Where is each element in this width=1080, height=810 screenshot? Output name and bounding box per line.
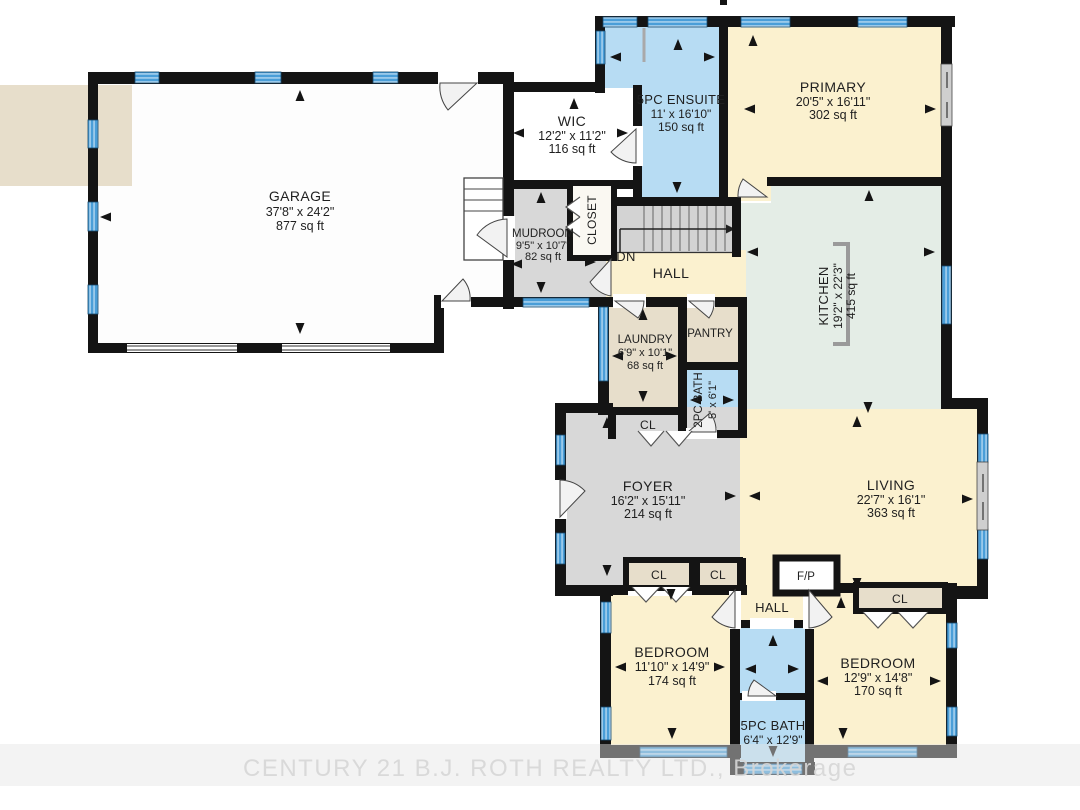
wall-segment [678,362,747,370]
brokerage-watermark: CENTURY 21 B.J. ROTH REALTY LTD., Broker… [0,744,1080,786]
room-label: WIC [558,113,586,129]
window [741,17,790,27]
room-label: CLOSET [585,195,599,245]
room-dims: 37'8" x 24'2" [266,205,335,219]
room-label: CL [892,592,908,606]
room-label: CL [710,568,726,582]
stairs-down-label: DN [616,249,635,264]
window [135,72,159,83]
room-area: 116 sq ft [548,142,596,156]
room-dims: 22'7" x 16'1" [857,493,926,507]
room-area: 174 sq ft [648,674,696,688]
room-dims: 12'2" x 11'2" [538,129,606,143]
window [599,307,608,381]
room-area: 214 sq ft [624,507,672,521]
room-area: 415 sq ft [844,272,858,319]
window [556,435,565,465]
window [523,298,589,307]
window [601,602,611,633]
wall-segment [503,82,604,92]
window [556,533,565,564]
room-area: 877 sq ft [276,219,324,233]
dimension-arrow [617,129,628,138]
room-label: FOYER [623,478,673,494]
room-wic-floor [0,85,132,186]
room-label: F/P [797,571,815,583]
room-area: 150 sq ft [658,120,705,134]
wall-segment [719,16,728,206]
wall-segment [732,197,741,257]
window [88,285,98,314]
room-label: HALL [653,265,690,281]
floorplan-drawing: GARAGE 37'8" x 24'2" 877 sq ft WIC 12'2"… [0,0,1080,810]
window [596,31,605,64]
door-opening [750,618,794,629]
dimension-arrow [513,129,524,138]
room-dims: 19'2" x 22'3" [831,263,845,329]
window [947,623,957,648]
window [601,707,611,740]
window [88,202,98,231]
cropped-top-mark [720,0,727,5]
room-dims: 12'9" x 14'8" [844,671,913,685]
dimension-arrow [570,98,579,109]
room-label: LIVING [867,477,915,493]
room-label: PANTRY [687,328,733,340]
window [88,120,98,148]
room-label: 5PC BATH [740,718,805,733]
room-label: 2PC BATH [693,372,705,427]
room-area: 363 sq ft [867,506,915,520]
window [648,17,707,27]
room-dims: 11' x 16'10" [651,107,712,121]
room-label: CL [651,568,667,582]
room-area: 68 sq ft [627,360,663,372]
window [942,266,951,324]
room-dims: 16'2" x 15'11" [611,494,686,508]
room-dims: 6'9" x 10'1" [618,347,672,359]
room-area: 82 sq ft [525,251,561,263]
room-dims: 11'10" x 14'9" [635,660,710,674]
room-label: MUDROOM [512,228,574,240]
room-label: BEDROOM [840,655,915,671]
watermark-text: CENTURY 21 B.J. ROTH REALTY LTD., Broker… [243,755,857,782]
room-dims: 20'5" x 16'11" [796,95,871,109]
room-label: LAUNDRY [618,334,673,346]
window [978,434,988,463]
room-area: 302 sq ft [809,108,857,122]
room-label: BEDROOM [634,644,709,660]
room-label: HALL [755,600,789,615]
garage-door-opening [127,344,237,352]
room-dims: 5' x 6'1" [707,381,719,419]
room-label: CL [640,418,656,432]
window [858,17,907,27]
room-fills [0,21,982,767]
room-label: PRIMARY [800,79,867,95]
room-area: 170 sq ft [854,684,902,698]
room-label: GARAGE [269,188,331,204]
garage-door-opening [282,344,390,352]
wall-segment [503,72,514,309]
window [603,17,637,27]
wall-segment [767,177,946,186]
window [978,529,988,559]
wall-segment [606,407,686,415]
floorplan-page: GARAGE 37'8" x 24'2" 877 sq ft WIC 12'2"… [0,0,1080,810]
window [373,72,398,83]
room-label: KITCHEN [816,266,831,325]
staircase [610,205,735,253]
room-label: 5PC ENSUITE [637,92,726,107]
window [947,707,957,736]
window [255,72,281,83]
